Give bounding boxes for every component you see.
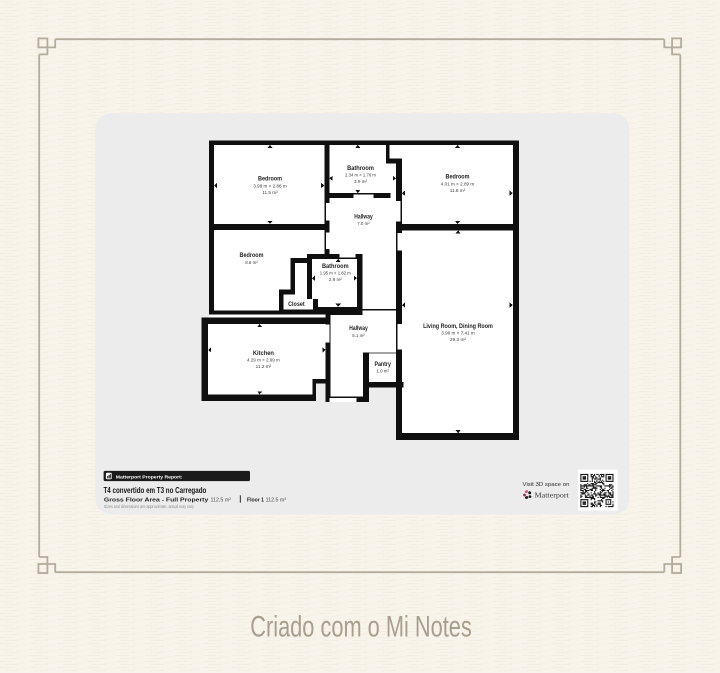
svg-text:3.99 m × 2.86 m: 3.99 m × 2.86 m	[253, 183, 286, 189]
svg-text:8.8 m²: 8.8 m²	[245, 260, 258, 266]
svg-text:Floor 1: Floor 1	[247, 498, 264, 504]
svg-text:Gross Floor Area - Full Proper: Gross Floor Area - Full Property	[104, 498, 208, 504]
svg-text:2.34 m × 1.76 m: 2.34 m × 1.76 m	[345, 173, 376, 179]
svg-text:1.95 m × 1.82 m: 1.95 m × 1.82 m	[320, 271, 351, 277]
svg-text:Pantry: Pantry	[374, 361, 391, 368]
svg-text:11.8 m²: 11.8 m²	[450, 188, 466, 194]
svg-text:2.9 m²: 2.9 m²	[329, 277, 342, 283]
svg-text:Bedroom: Bedroom	[258, 176, 282, 183]
svg-text:7.0 m²: 7.0 m²	[357, 221, 370, 227]
svg-text:3.96 m × 7.41 m: 3.96 m × 7.41 m	[441, 331, 474, 337]
svg-text:Bathroom: Bathroom	[347, 165, 374, 172]
svg-text:11.2 m²: 11.2 m²	[256, 364, 272, 370]
svg-text:11.5 m²: 11.5 m²	[262, 190, 278, 196]
svg-text:Bedroom: Bedroom	[240, 252, 264, 259]
svg-text:112.5 m²: 112.5 m²	[266, 498, 287, 504]
svg-text:Sizes and dimensions are appro: Sizes and dimensions are approximate, ac…	[104, 504, 195, 509]
svg-text:Hallway: Hallway	[354, 213, 373, 220]
svg-text:4.01 m × 2.89 m: 4.01 m × 2.89 m	[441, 181, 474, 187]
svg-text:Matterport Property Report:: Matterport Property Report:	[116, 474, 183, 480]
svg-text:Bedroom: Bedroom	[446, 174, 470, 181]
svg-text:29.3 m²: 29.3 m²	[450, 337, 466, 343]
svg-text:Kitchen: Kitchen	[253, 350, 274, 357]
svg-text:5.1 m²: 5.1 m²	[352, 333, 365, 339]
svg-text:3.9 m²: 3.9 m²	[354, 179, 367, 185]
svg-text:Bathroom: Bathroom	[322, 263, 349, 270]
svg-text:4.29 m × 2.69 m: 4.29 m × 2.69 m	[247, 358, 280, 364]
svg-text:Visit 3D space on: Visit 3D space on	[523, 482, 570, 488]
svg-text:Living Room, Dining Room: Living Room, Dining Room	[423, 324, 493, 330]
svg-text:Criado com o Mi Notes: Criado com o Mi Notes	[250, 610, 472, 643]
svg-text:1.0 m²: 1.0 m²	[376, 368, 389, 374]
svg-text:112.5 m²: 112.5 m²	[211, 498, 232, 504]
svg-text:Closet: Closet	[288, 301, 305, 308]
svg-text:T4 convertido em T3 no Carrega: T4 convertido em T3 no Carregado	[104, 485, 207, 495]
svg-text:Matterport: Matterport	[535, 491, 570, 500]
svg-text:Hallway: Hallway	[349, 325, 368, 332]
